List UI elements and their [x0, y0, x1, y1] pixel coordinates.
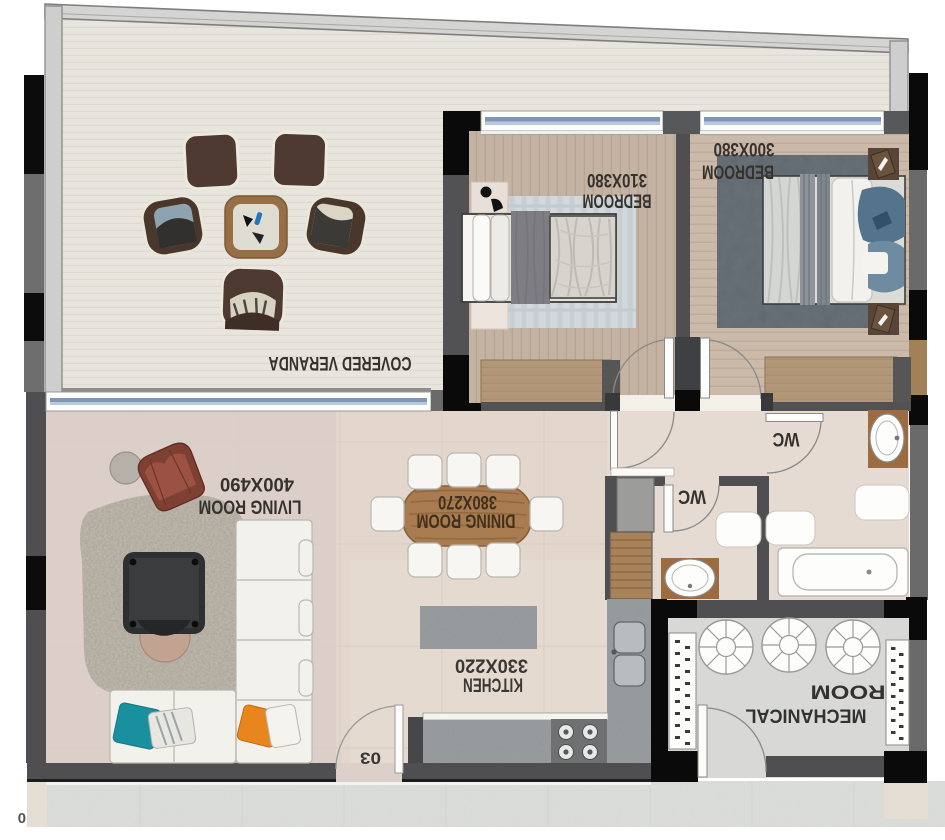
svg-text:BEDROOM: BEDROOM [702, 161, 774, 182]
svg-text:380X270: 380X270 [438, 491, 497, 512]
svg-text:LIVING ROOM: LIVING ROOM [199, 496, 302, 517]
svg-text:300X380: 300X380 [714, 138, 775, 159]
svg-text:WC: WC [772, 428, 799, 449]
svg-text:MECHANICAL: MECHANICAL [745, 705, 866, 727]
svg-text:400X490: 400X490 [220, 473, 294, 494]
svg-text:BEDROOM: BEDROOM [583, 190, 652, 211]
svg-text:COVERED VERANDA: COVERED VERANDA [268, 352, 411, 373]
svg-text:WC: WC [678, 486, 706, 507]
svg-text:DINING ROOM: DINING ROOM [417, 510, 516, 531]
svg-text:0: 0 [18, 809, 26, 826]
svg-text:KITCHEN: KITCHEN [463, 674, 523, 695]
svg-text:03: 03 [360, 749, 381, 768]
svg-text:310X380: 310X380 [587, 169, 647, 190]
svg-text:ROOM: ROOM [811, 681, 886, 703]
svg-text:330X220: 330X220 [455, 655, 528, 676]
